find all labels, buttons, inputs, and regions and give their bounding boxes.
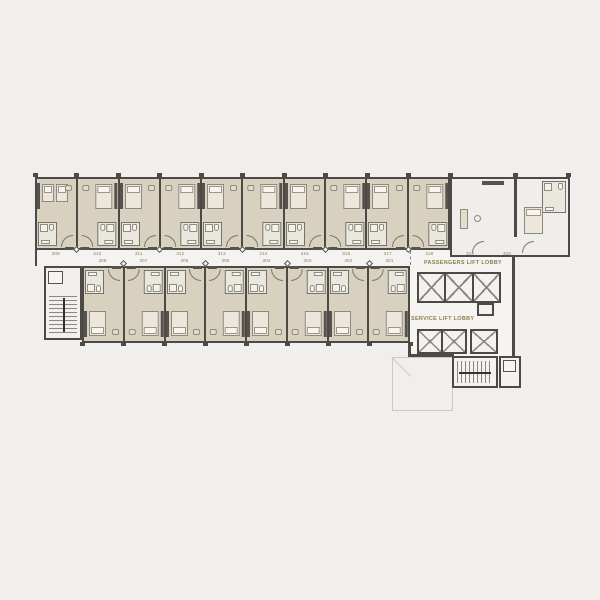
armchair-icon	[313, 185, 320, 191]
bathroom	[121, 222, 140, 246]
bed-icon	[261, 184, 278, 209]
bed-icon	[42, 184, 54, 202]
door-arc	[226, 235, 238, 247]
bed-icon	[171, 311, 188, 336]
guestroom-module	[125, 268, 164, 341]
armchair-icon	[413, 185, 420, 191]
bed-icon	[178, 184, 195, 209]
passengers-lobby-label: PASSENGERS LIFT LOBBY	[424, 260, 502, 266]
guestroom-module	[288, 268, 327, 341]
bed-icon	[142, 311, 159, 336]
door-arc	[372, 269, 384, 281]
sink-icon	[232, 272, 241, 276]
entry-door-icon	[411, 247, 420, 250]
guestroom-306	[164, 268, 205, 341]
guestroom-308	[84, 268, 123, 341]
shower-icon	[250, 284, 258, 292]
stair-divider	[459, 372, 491, 374]
shower-icon	[189, 224, 197, 232]
door-arc	[189, 269, 201, 281]
stair-core-left	[44, 266, 82, 340]
bed-icon	[96, 184, 113, 209]
wardrobe-icon	[120, 183, 123, 209]
door-arc	[246, 235, 258, 247]
sink-icon	[545, 207, 554, 211]
bathroom	[248, 270, 267, 294]
door-arc	[392, 235, 404, 247]
sink-icon	[187, 240, 196, 244]
armchair-icon	[165, 185, 172, 191]
guestroom-304	[245, 268, 286, 341]
guestroom-301	[367, 268, 408, 341]
guestroom-317	[365, 179, 406, 248]
toilet-icon	[259, 285, 264, 292]
guestroom-module	[247, 268, 286, 341]
shower-icon	[332, 284, 340, 292]
guestroom-module	[206, 268, 245, 341]
shower-icon	[107, 224, 115, 232]
lift-shaft-icon	[48, 271, 63, 284]
service-lift-shaft	[441, 331, 465, 352]
guestroom-module	[409, 179, 448, 248]
stair-core-right	[452, 356, 498, 388]
sink-icon	[395, 272, 404, 276]
door-arc	[352, 269, 364, 281]
shower-icon	[272, 224, 280, 232]
armchair-icon	[129, 329, 136, 335]
bathroom	[286, 222, 305, 246]
bathroom	[428, 222, 447, 246]
bathroom	[263, 222, 282, 246]
sink-icon	[206, 240, 215, 244]
wardrobe-icon	[247, 311, 250, 337]
bed-icon	[207, 184, 224, 209]
suite-table	[474, 215, 481, 222]
guestroom-module	[367, 179, 406, 248]
sink-icon	[352, 240, 361, 244]
shower-icon	[288, 224, 296, 232]
suite-sofa	[460, 209, 468, 229]
guestroom-315	[283, 179, 324, 248]
shower-icon	[234, 284, 242, 292]
armchair-icon	[247, 185, 254, 191]
armchair-icon	[230, 185, 237, 191]
guestroom-318	[407, 179, 448, 248]
guestroom-312	[159, 179, 200, 248]
wardrobe-icon	[202, 183, 205, 209]
guestroom-module	[285, 179, 324, 248]
entry-door-icon	[371, 266, 380, 269]
toilet-icon	[96, 285, 101, 292]
toilet-icon	[49, 224, 54, 231]
bathroom	[307, 270, 326, 294]
shower-icon	[169, 284, 177, 292]
door-arc	[309, 235, 321, 247]
guestroom-band-top	[35, 177, 450, 250]
sink-icon	[151, 272, 160, 276]
bed-icon	[305, 311, 322, 336]
bathroom	[388, 270, 407, 294]
entry-door-icon	[193, 266, 202, 269]
sink-icon	[170, 272, 179, 276]
guestroom-band-bottom	[82, 266, 410, 343]
guestroom-311	[118, 179, 159, 248]
toilet-icon	[379, 224, 384, 231]
sink-icon	[105, 240, 114, 244]
shower-icon	[153, 284, 161, 292]
roof-outline	[392, 357, 453, 411]
armchair-icon	[193, 329, 200, 335]
service-lobby-label: SERVICE LIFT LOBBY	[411, 316, 474, 322]
sink-icon	[289, 240, 298, 244]
wardrobe-icon	[405, 311, 408, 337]
guestroom-316	[324, 179, 365, 248]
door-arc	[271, 269, 283, 281]
core-right-wall	[512, 257, 515, 357]
passenger-lift-shaft	[419, 274, 444, 301]
armchair-icon	[65, 185, 72, 191]
bed-icon	[223, 311, 240, 336]
door-arc	[412, 235, 424, 247]
core-bottom-wall	[408, 354, 454, 357]
toilet-icon	[431, 224, 436, 231]
service-shaft	[470, 329, 498, 354]
entry-door-icon	[275, 266, 284, 269]
passenger-lift-bank	[417, 272, 501, 303]
guestroom-307	[123, 268, 164, 341]
wardrobe-icon	[445, 183, 448, 209]
wardrobe-icon	[285, 183, 288, 209]
toilet-icon	[183, 224, 188, 231]
armchair-icon	[275, 329, 282, 335]
toilet-icon	[101, 224, 106, 231]
sink-icon	[314, 272, 323, 276]
bathroom	[368, 222, 387, 246]
guestroom-module	[37, 179, 76, 248]
sink-icon	[88, 272, 97, 276]
door-arc	[81, 235, 93, 247]
guestroom-302	[327, 268, 368, 341]
entry-door-icon	[112, 266, 121, 269]
bathroom	[167, 270, 186, 294]
bed-icon	[334, 311, 351, 336]
toilet-icon	[266, 224, 271, 231]
bathroom	[144, 270, 163, 294]
armchair-icon	[148, 185, 155, 191]
shower-icon	[354, 224, 362, 232]
guestroom-303	[286, 268, 327, 341]
entry-door-icon	[356, 266, 365, 269]
bathroom	[85, 270, 104, 294]
sink-icon	[371, 240, 380, 244]
wardrobe-icon	[329, 311, 332, 337]
guestroom-module	[202, 179, 241, 248]
door-arc	[144, 235, 156, 247]
guestroom-module	[161, 179, 200, 248]
pillow-icon	[526, 209, 541, 216]
entry-door-icon	[127, 266, 136, 269]
floor-plan-canvas: PASSENGERS LIFT LOBBY SERVICE LIFT LOBBY…	[0, 0, 600, 600]
armchair-icon	[82, 185, 89, 191]
guestroom-305	[204, 268, 245, 341]
sink-icon	[270, 240, 279, 244]
passenger-lift-shaft	[472, 274, 499, 301]
corridor-lobby-boundary	[410, 251, 411, 265]
bed-icon	[372, 184, 389, 209]
duct-shaft	[477, 303, 494, 316]
bathroom	[330, 270, 349, 294]
sink-icon	[124, 240, 133, 244]
armchair-icon	[373, 329, 380, 335]
toilet-icon	[391, 285, 396, 292]
toilet-icon	[341, 285, 346, 292]
guestroom-module	[329, 268, 368, 341]
sink-icon	[41, 240, 50, 244]
lift-shaft-icon	[503, 360, 516, 372]
armchair-icon	[330, 185, 337, 191]
bathroom	[180, 222, 199, 246]
door-arc	[164, 235, 176, 247]
guestroom-313	[200, 179, 241, 248]
shower-icon	[397, 284, 405, 292]
door-arc	[128, 269, 140, 281]
bed-icon	[343, 184, 360, 209]
armchair-icon	[356, 329, 363, 335]
wardrobe-icon	[367, 183, 370, 209]
entry-door-icon	[290, 266, 299, 269]
suite-bed	[524, 207, 543, 234]
bathroom	[203, 222, 222, 246]
wardrobe-icon	[37, 183, 40, 209]
shower-icon	[437, 224, 445, 232]
guestroom-309	[37, 179, 76, 248]
bed-icon	[426, 184, 443, 209]
door-arc	[291, 269, 303, 281]
guestroom-module	[120, 179, 159, 248]
suite-unit	[450, 177, 570, 257]
door-arc	[472, 241, 484, 253]
corridor	[35, 250, 410, 266]
suite-bath	[542, 181, 566, 213]
guestroom-module	[78, 179, 117, 248]
bathroom	[38, 222, 57, 246]
armchair-icon	[396, 185, 403, 191]
toilet-icon	[348, 224, 353, 231]
bed-icon	[252, 311, 269, 336]
bed-icon	[290, 184, 307, 209]
armchair-icon	[292, 329, 299, 335]
guestroom-314	[241, 179, 282, 248]
armchair-icon	[112, 329, 119, 335]
door-arc	[108, 269, 120, 281]
shower-icon	[87, 284, 95, 292]
door-arc	[522, 241, 534, 253]
sink-icon	[251, 272, 260, 276]
suite-partition-wall	[514, 179, 517, 237]
bathroom	[225, 270, 244, 294]
door-arc	[329, 235, 341, 247]
door-arc	[209, 269, 221, 281]
shower-icon	[370, 224, 378, 232]
bed-icon	[89, 311, 106, 336]
guestroom-module	[84, 268, 123, 341]
toilet-icon	[147, 285, 152, 292]
entry-door-icon	[208, 266, 217, 269]
bed-icon	[125, 184, 142, 209]
guestroom-310	[76, 179, 117, 248]
toilet-icon	[214, 224, 219, 231]
shower-icon	[123, 224, 131, 232]
wardrobe-icon	[84, 311, 87, 337]
guestroom-module	[326, 179, 365, 248]
toilet-icon	[297, 224, 302, 231]
guestroom-module	[166, 268, 205, 341]
toilet-icon	[310, 285, 315, 292]
shower-icon	[40, 224, 48, 232]
service-lift-bank	[417, 329, 467, 354]
sink-icon	[435, 240, 444, 244]
passenger-lift-shaft	[444, 274, 471, 301]
bed-icon	[386, 311, 403, 336]
bathroom	[98, 222, 117, 246]
bathroom	[345, 222, 364, 246]
stair-divider	[63, 298, 65, 332]
toilet-icon	[178, 285, 183, 292]
wardrobe-icon	[166, 311, 169, 337]
toilet-icon	[132, 224, 137, 231]
shower-icon	[316, 284, 324, 292]
riser-room	[499, 356, 521, 388]
toilet-icon	[228, 285, 233, 292]
toilet-icon	[558, 183, 563, 190]
door-arc	[61, 235, 73, 247]
guestroom-module	[243, 179, 282, 248]
guestroom-module	[369, 268, 408, 341]
shower-icon	[205, 224, 213, 232]
armchair-icon	[210, 329, 217, 335]
suite-console	[482, 181, 504, 185]
sink-icon	[333, 272, 342, 276]
shower-icon	[544, 183, 552, 191]
service-lift-shaft	[419, 331, 441, 352]
